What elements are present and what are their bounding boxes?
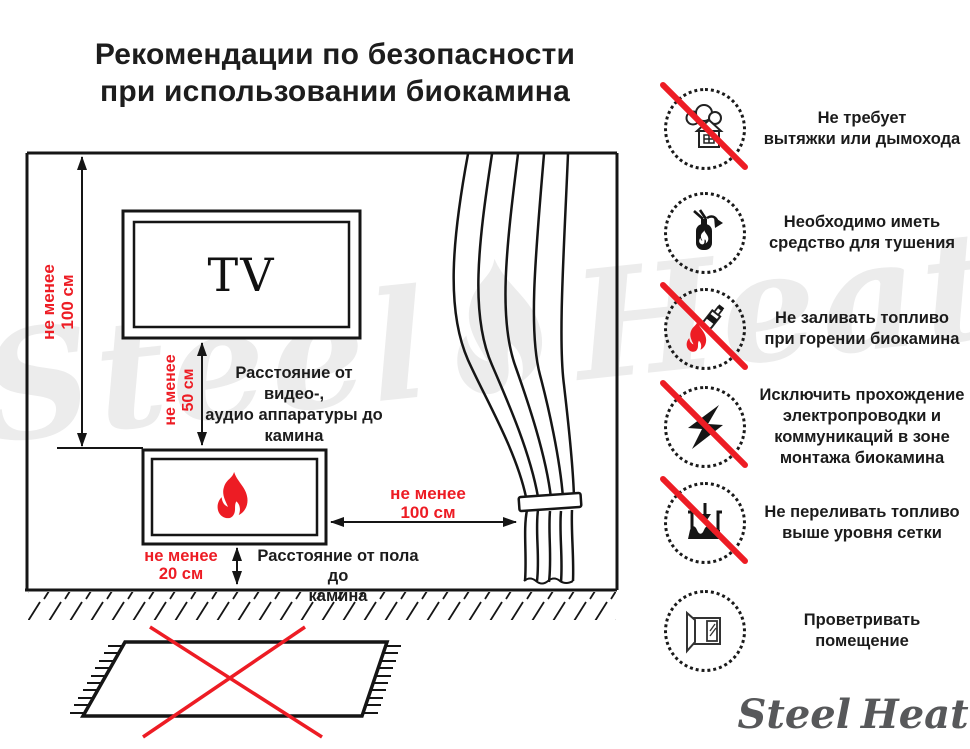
rule-extinguisher: Необходимо иметь средство для тушения (664, 185, 966, 281)
tv-label: TV (123, 211, 360, 338)
dim-label-floor-20cm: не менее 20 см (126, 547, 236, 583)
rule-badge (664, 192, 746, 274)
prohibition-strike-icon (655, 377, 755, 477)
note-tv-distance: Расстояние от видео-, аудио аппаратуры д… (204, 363, 384, 447)
rule-badge (664, 590, 746, 672)
steelheat-logo: Steel Heat (738, 684, 968, 744)
rule-text: Исключить прохождение электропроводки и … (758, 385, 966, 469)
prohibition-strike-icon (655, 279, 755, 379)
note-floor-distance: Расстояние от пола до камина (248, 546, 428, 606)
rule-text: Не переливать топливо выше уровня сетки (758, 502, 966, 544)
carpet-fringe (70, 646, 401, 713)
rule-badge (664, 482, 746, 564)
dotted-circle (664, 192, 746, 274)
page-title: Рекомендации по безопасности при использ… (25, 36, 645, 110)
rule-badge (664, 288, 746, 370)
carpet (70, 627, 401, 737)
prohibition-strike-icon (655, 473, 755, 573)
extinguisher-icon (679, 207, 731, 259)
rule-text: Не заливать топливо при горении биокамин… (758, 308, 966, 350)
logo-word-heat: Heat (861, 691, 969, 738)
rule-ventilate: Проветривать помещение (664, 583, 966, 679)
dotted-circle (664, 590, 746, 672)
logo-word-steel: Steel (737, 691, 850, 738)
rule-text: Проветривать помещение (758, 610, 966, 652)
rule-badge (664, 88, 746, 170)
dim-label-curtain-100cm: не менее 100 см (362, 484, 494, 522)
rule-no-refuel-while-burning: Не заливать топливо при горении биокамин… (664, 281, 966, 377)
rule-badge (664, 386, 746, 468)
rule-text: Необходимо иметь средство для тушения (758, 212, 966, 254)
dim-label-tv-50cm: не менее 50 см (162, 330, 198, 450)
ventilate-icon (679, 605, 731, 657)
rule-no-chimney: Не требует вытяжки или дымохода (664, 81, 966, 177)
rule-no-electric-wiring: Исключить прохождение электропроводки и … (664, 379, 966, 475)
curtain-tieback (519, 493, 582, 511)
rule-text: Не требует вытяжки или дымохода (758, 108, 966, 150)
dim-label-wall-100cm: не менее 100 см (39, 237, 77, 367)
prohibition-strike-icon (655, 79, 755, 179)
rule-no-overfill: Не переливать топливо выше уровня сетки (664, 475, 966, 571)
